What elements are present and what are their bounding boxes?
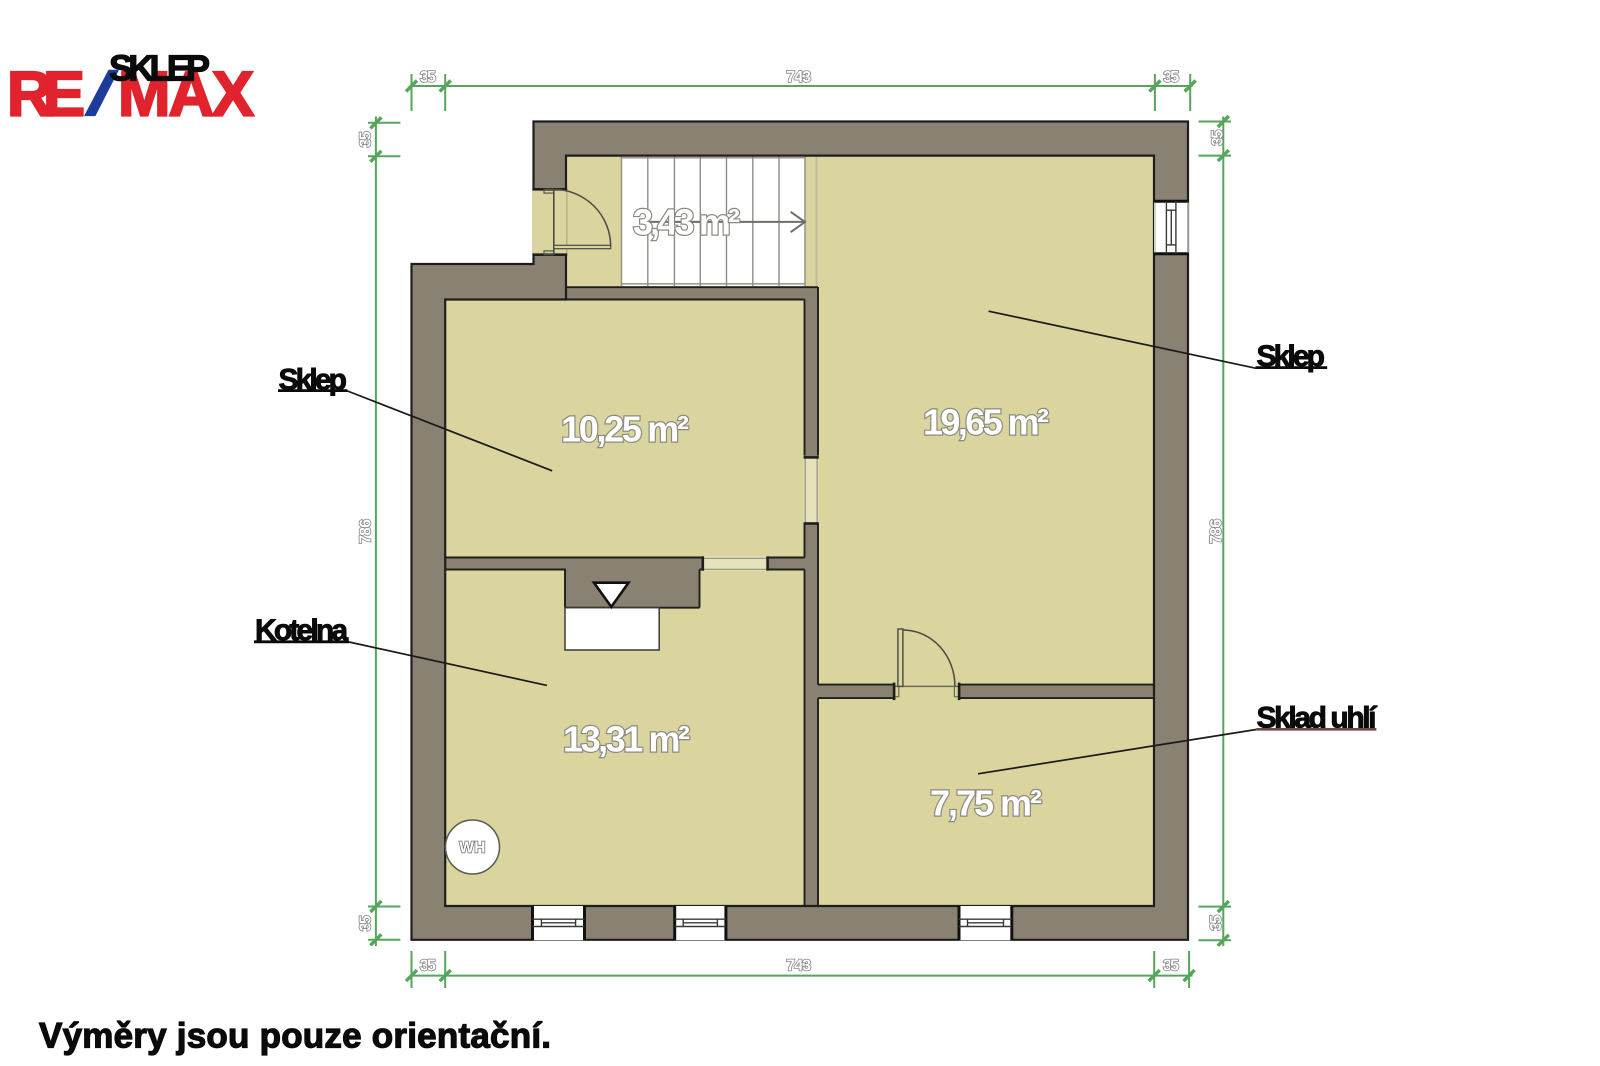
svg-text:35: 35	[1163, 957, 1179, 974]
svg-text:SKLEP: SKLEP	[109, 48, 210, 89]
svg-text:3,43 m²: 3,43 m²	[633, 202, 740, 243]
svg-text:743: 743	[786, 957, 811, 974]
svg-text:10,25 m²: 10,25 m²	[561, 409, 689, 450]
svg-text:35: 35	[1163, 69, 1179, 86]
svg-text:35: 35	[357, 131, 374, 147]
svg-text:786: 786	[358, 519, 375, 544]
svg-text:35: 35	[1208, 915, 1225, 931]
svg-text:WH: WH	[459, 840, 485, 857]
svg-text:35: 35	[420, 69, 436, 86]
svg-text:35: 35	[358, 915, 375, 931]
svg-text:13,31 m²: 13,31 m²	[563, 719, 690, 760]
svg-text:35: 35	[1209, 130, 1226, 146]
svg-text:743: 743	[786, 69, 811, 86]
svg-text:19,65 m²: 19,65 m²	[923, 402, 1049, 443]
svg-text:Výměry jsou pouze orientační.: Výměry jsou pouze orientační.	[39, 1017, 551, 1056]
svg-text:7,75 m²: 7,75 m²	[930, 783, 1042, 824]
svg-text:RE: RE	[7, 59, 85, 129]
svg-text:35: 35	[420, 957, 436, 974]
svg-text:786: 786	[1208, 519, 1225, 544]
